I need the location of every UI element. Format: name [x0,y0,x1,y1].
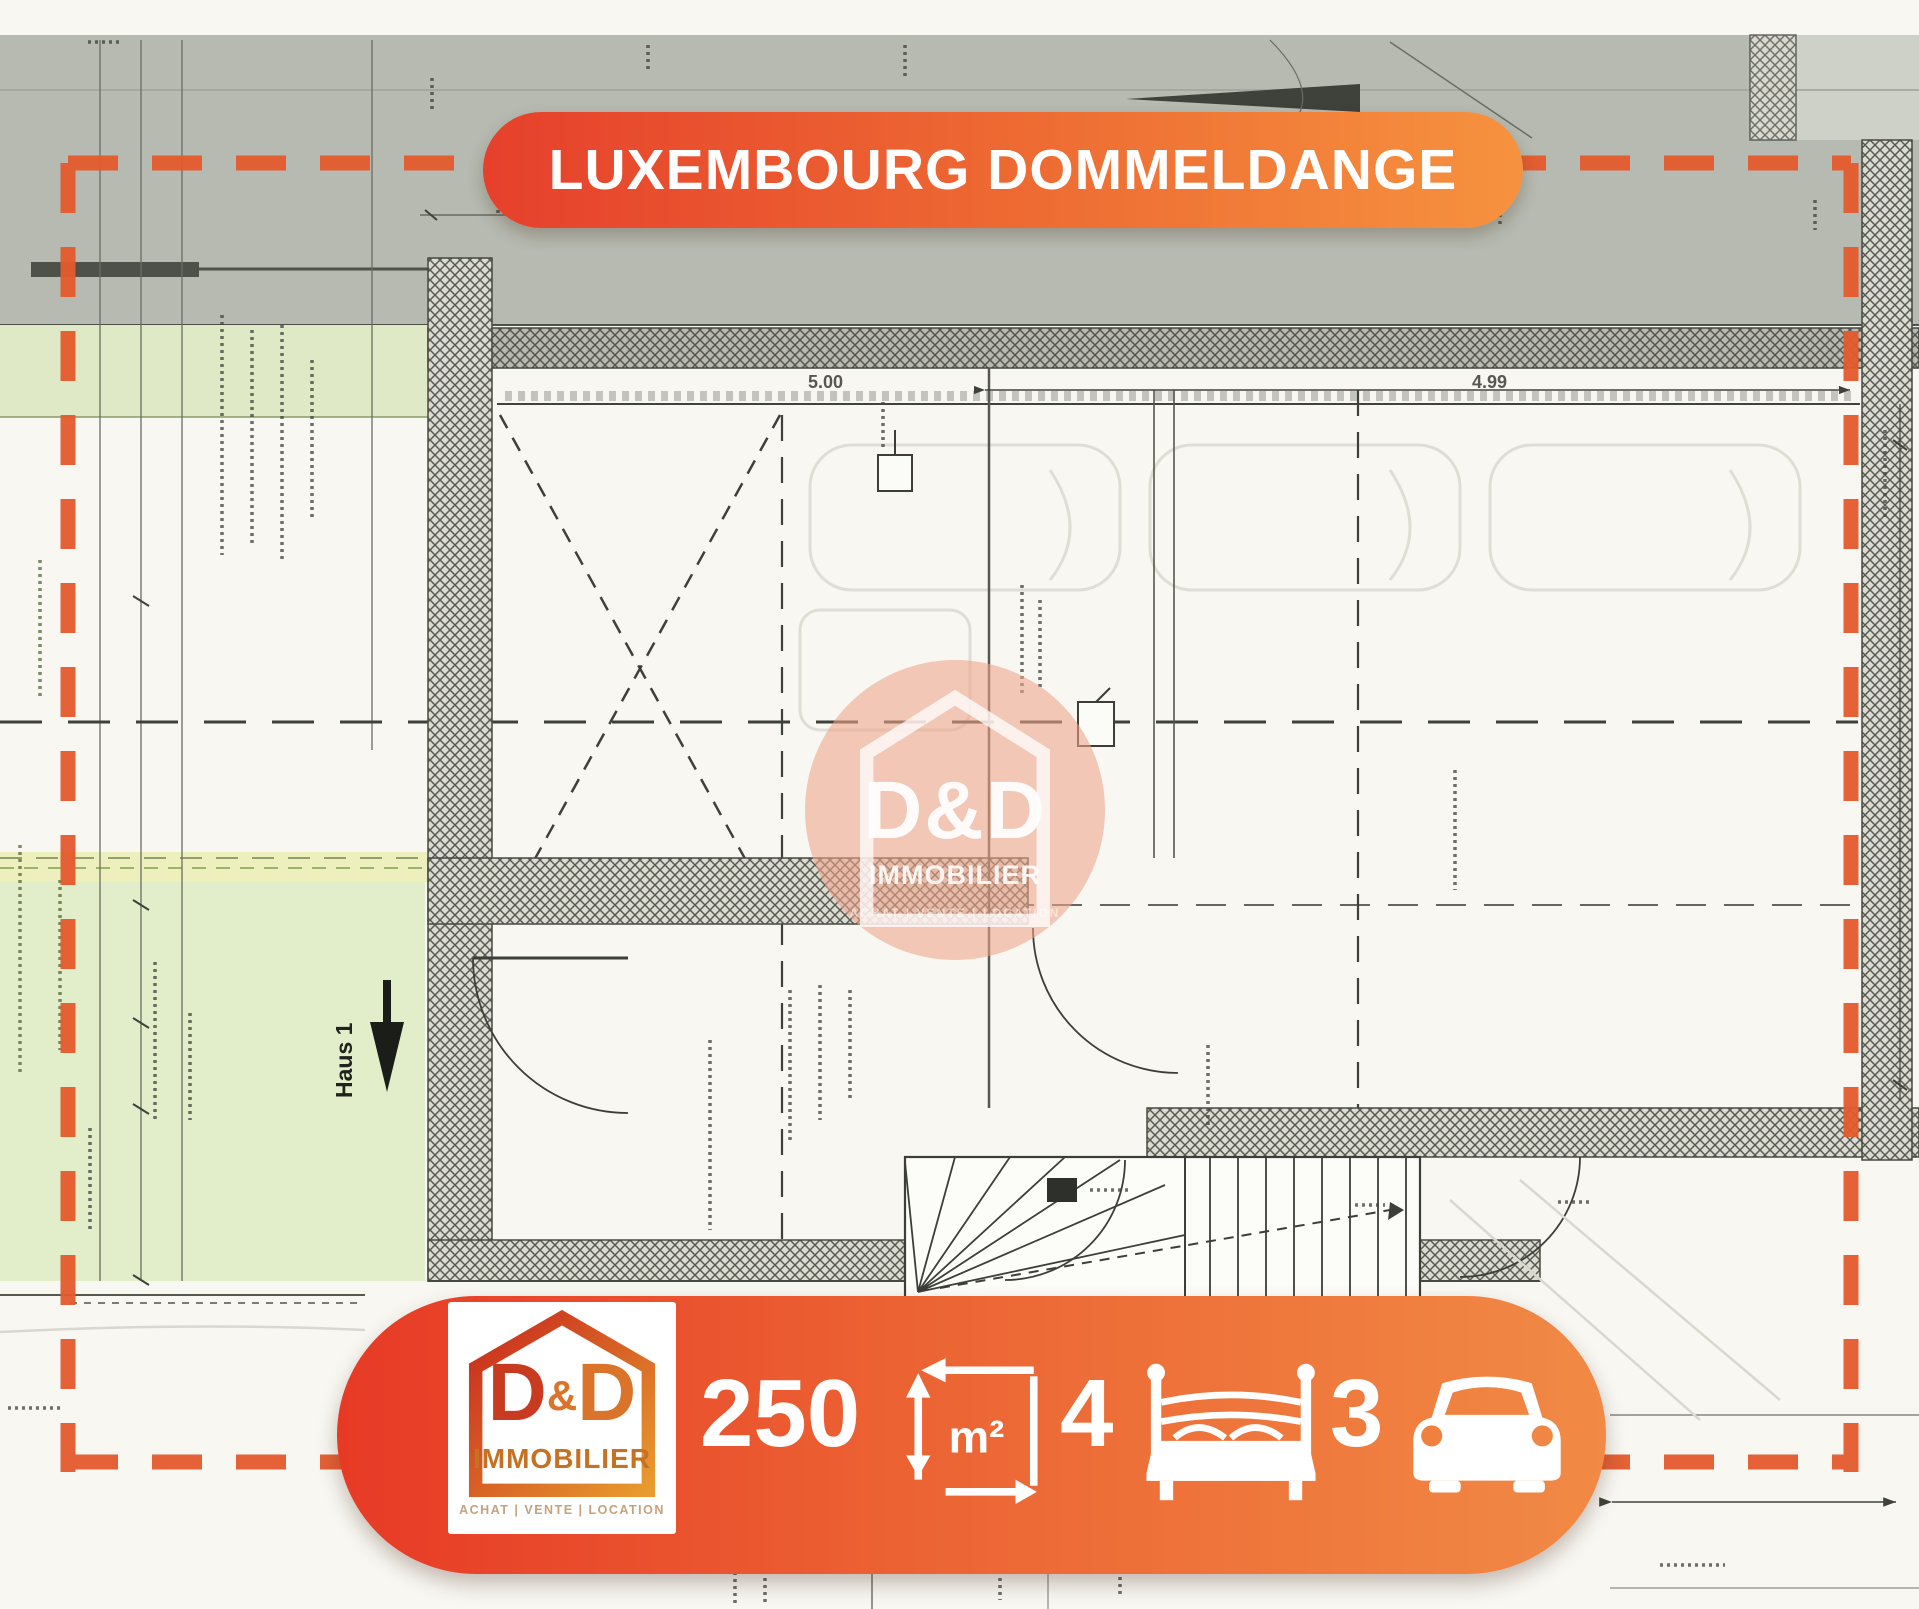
watermark-name: IMMOBILIER [805,860,1105,891]
dim-label-left: 5.00 [808,372,843,392]
measure-icon: m² [900,1352,1052,1504]
dim-label-right: 4.99 [1472,372,1507,392]
agency-name: IMMOBILIER [448,1443,676,1475]
agency-logo-card: D&D IMMOBILIER ACHAT | VENTE | LOCATION [448,1302,676,1534]
location-title: LUXEMBOURG DOMMELDANGE [549,137,1458,203]
agency-brand-amp: & [547,1372,577,1419]
haus1-label: Haus 1 [331,1022,357,1098]
watermark-tagline: ACHAT | VENTE | LOCATION [805,906,1105,920]
staircase [905,1157,1420,1300]
agency-brand: D&D [448,1352,676,1434]
listing-poster: 5.00 4.99 [0,0,1919,1609]
agency-brand-d2: D [577,1347,636,1438]
bedrooms-value: 4 [1060,1366,1113,1462]
parking-value: 3 [1330,1366,1383,1462]
area-value: 250 [700,1366,860,1462]
agency-tagline: ACHAT | VENTE | LOCATION [448,1503,676,1517]
agency-brand-d1: D [488,1347,547,1438]
area-unit: m² [949,1411,1005,1462]
location-banner: LUXEMBOURG DOMMELDANGE [483,112,1523,228]
bed-icon [1142,1350,1320,1508]
stats-banner: D&D IMMOBILIER ACHAT | VENTE | LOCATION … [337,1296,1606,1574]
agency-watermark: D&D IMMOBILIER ACHAT | VENTE | LOCATION [805,660,1105,960]
watermark-brand: D&D [805,764,1105,858]
car-icon [1408,1352,1566,1504]
